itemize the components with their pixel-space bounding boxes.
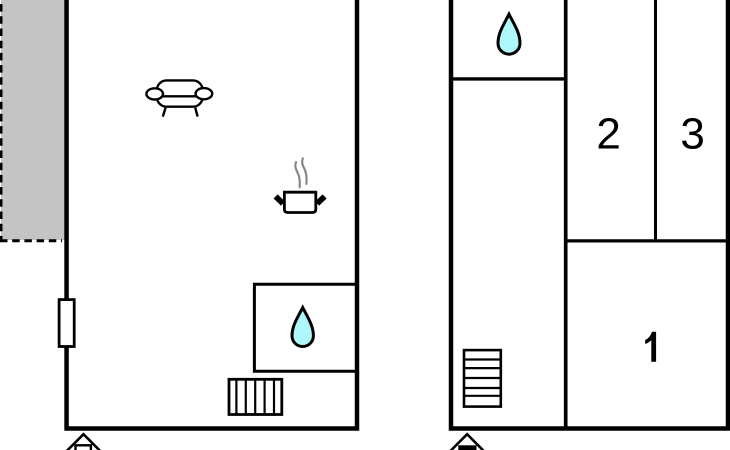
svg-text:3: 3 <box>680 110 704 159</box>
svg-text:2: 2 <box>596 110 620 159</box>
